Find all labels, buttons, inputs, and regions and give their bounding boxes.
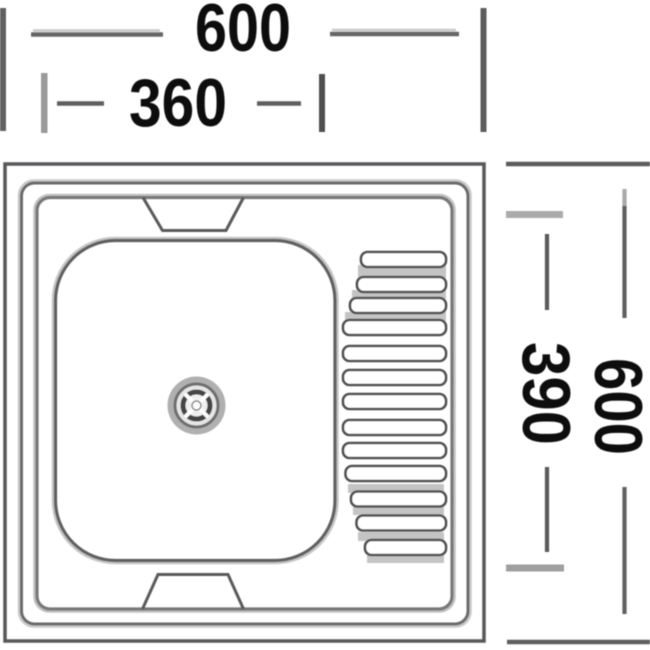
svg-text:600: 600 [580, 358, 650, 455]
svg-text:600: 600 [195, 0, 291, 66]
svg-text:360: 360 [129, 65, 227, 141]
svg-text:390: 390 [508, 342, 584, 445]
